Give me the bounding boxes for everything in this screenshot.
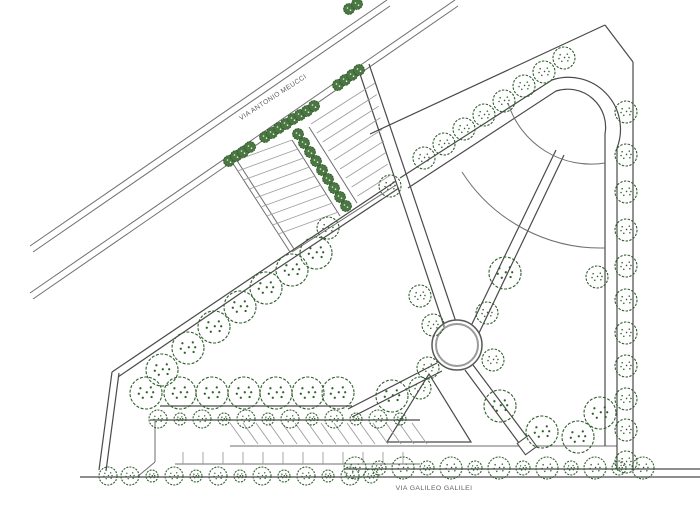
tree-speckle	[216, 478, 217, 479]
tree-speckle	[290, 418, 291, 419]
tree-speckle	[428, 157, 430, 159]
tree-speckle	[433, 324, 435, 326]
tree-speckle	[248, 415, 249, 416]
tree-speckle	[111, 475, 112, 476]
tree-speckle	[380, 465, 381, 466]
tree-speckle	[629, 328, 631, 330]
tree-speckle	[458, 129, 460, 131]
tree-speckle	[285, 477, 286, 478]
tree-speckle	[106, 478, 107, 479]
tree-speckle	[282, 391, 284, 393]
tree-speckle	[296, 273, 298, 275]
tree-symbol	[260, 377, 292, 409]
tree-speckle	[626, 191, 628, 193]
tree-speckle	[615, 468, 616, 469]
tree-speckle	[488, 114, 490, 116]
tree-speckle	[222, 420, 223, 421]
tree-speckle	[310, 420, 311, 421]
tree-speckle	[437, 324, 439, 326]
tree-speckle	[637, 468, 639, 470]
tree-speckle	[178, 420, 179, 421]
tree-symbol	[615, 419, 637, 441]
tree-speckle	[436, 327, 438, 329]
tree-speckle	[621, 469, 622, 470]
tree-speckle	[172, 478, 173, 479]
tree-symbol	[533, 61, 555, 83]
tree-speckle	[542, 430, 544, 432]
tree-speckle	[150, 477, 151, 478]
parking-stall-line	[399, 423, 414, 444]
tree-speckle	[238, 477, 239, 478]
tree-speckle	[415, 292, 417, 294]
tree-speckle	[640, 471, 642, 473]
hedge-dot	[308, 111, 310, 113]
tree-speckle	[550, 463, 552, 465]
tree-speckle	[346, 473, 347, 474]
tree-speckle	[523, 467, 524, 468]
tree-speckle	[264, 472, 265, 473]
tree-speckle	[205, 387, 207, 389]
tree-speckle	[328, 475, 329, 476]
parking-stall-line	[346, 153, 386, 178]
tree-speckle	[423, 291, 425, 293]
tree-speckle	[150, 386, 152, 388]
tree-speckle	[548, 71, 550, 73]
tree-speckle	[266, 420, 267, 421]
tree-speckle	[334, 418, 335, 419]
tree-speckle	[468, 128, 470, 130]
tree-speckle	[368, 473, 369, 474]
tree-speckle	[444, 143, 446, 145]
tree-speckle	[216, 396, 218, 398]
tree-speckle	[417, 299, 419, 301]
tree-speckle	[133, 475, 134, 476]
tree-speckle	[439, 140, 441, 142]
tree-speckle	[184, 352, 186, 354]
tree-speckle	[246, 305, 248, 307]
tree-speckle	[420, 295, 422, 297]
hedge-dot	[353, 75, 355, 77]
tree-speckle	[169, 476, 170, 477]
tree-speckle	[620, 266, 622, 268]
tree-speckle	[325, 476, 326, 477]
tree-speckle	[186, 391, 188, 393]
tree-speckle	[132, 472, 133, 473]
tree-speckle	[197, 419, 198, 420]
tree-speckle	[329, 473, 330, 474]
tree-speckle	[142, 397, 144, 399]
tree-speckle	[276, 391, 278, 393]
tree-speckle	[166, 363, 168, 365]
tree-speckle	[285, 419, 286, 420]
tree-speckle	[419, 154, 421, 156]
tree-symbol	[632, 457, 654, 479]
tree-speckle	[428, 465, 429, 466]
plan-line	[352, 371, 442, 417]
hedge-dot	[287, 124, 289, 126]
tree-speckle	[392, 394, 394, 396]
tree-speckle	[629, 368, 631, 370]
tree-speckle	[507, 103, 509, 105]
tree-speckle	[464, 128, 466, 130]
tree-speckle	[629, 225, 631, 227]
tree-speckle	[293, 418, 294, 419]
tree-speckle	[313, 420, 314, 421]
tree-speckle	[589, 468, 591, 470]
tree-speckle	[600, 411, 602, 413]
hedge-dot	[305, 143, 307, 145]
tree-speckle	[561, 61, 563, 63]
parking-stall-line	[230, 423, 245, 444]
tree-speckle	[268, 393, 270, 395]
tree-speckle	[567, 53, 569, 55]
parking-stall-line	[273, 203, 333, 225]
tree-speckle	[176, 472, 177, 473]
parking-stall-line	[244, 158, 304, 180]
tree-speckle	[168, 368, 170, 370]
tree-speckle	[288, 274, 290, 276]
tree-speckle	[220, 472, 221, 473]
tree-speckle	[431, 370, 433, 372]
tree-speckle	[312, 386, 314, 388]
hedge-dot	[241, 150, 243, 152]
tree-speckle	[204, 415, 205, 416]
hedge-dot	[338, 195, 340, 197]
plan-line	[473, 365, 527, 437]
tree-speckle	[629, 261, 631, 263]
parking-stall-line	[334, 129, 382, 160]
tree-speckle	[128, 478, 129, 479]
tree-speckle	[176, 397, 178, 399]
tree-speckle	[193, 474, 194, 475]
tree-speckle	[384, 396, 386, 398]
tree-speckle	[155, 364, 157, 366]
tree-speckle	[329, 419, 330, 420]
tree-speckle	[380, 421, 381, 422]
tree-speckle	[542, 464, 544, 466]
tree-speckle	[213, 476, 214, 477]
tree-speckle	[196, 475, 197, 476]
tree-speckle	[166, 373, 168, 375]
parking-stall-line	[340, 141, 384, 169]
tree-speckle	[424, 157, 426, 159]
tree-speckle	[623, 465, 625, 467]
tree-speckle	[180, 348, 182, 350]
tree-speckle	[259, 282, 261, 284]
tree-speckle	[221, 475, 222, 476]
tree-speckle	[269, 416, 270, 417]
tree-speckle	[342, 386, 344, 388]
tree-speckle	[524, 85, 526, 87]
tree-speckle	[547, 74, 549, 76]
tree-speckle	[218, 475, 219, 476]
tree-speckle	[328, 227, 330, 229]
parking-stall-line	[243, 423, 258, 444]
tree-speckle	[262, 475, 263, 476]
tree-speckle	[286, 416, 287, 417]
tree-speckle	[401, 420, 402, 421]
hedge-dot	[284, 122, 286, 124]
tree-speckle	[397, 419, 398, 420]
tree-speckle	[445, 468, 447, 470]
plaza-circle	[432, 320, 482, 370]
tree-speckle	[629, 394, 631, 396]
tree-speckle	[629, 268, 631, 270]
tree-speckle	[488, 356, 490, 358]
tree-speckle	[237, 474, 238, 475]
tree-symbol	[198, 311, 230, 343]
tree-speckle	[447, 146, 449, 148]
tree-speckle	[345, 476, 346, 477]
tree-speckle	[559, 54, 561, 56]
tree-speckle	[643, 467, 645, 469]
tree-speckle	[541, 468, 543, 470]
tree-speckle	[569, 469, 570, 470]
tree-speckle	[621, 226, 623, 228]
parking-stall-line	[267, 194, 327, 216]
tree-speckle	[170, 473, 171, 474]
hedge-dot	[263, 135, 265, 137]
tree-speckle	[621, 426, 623, 428]
tree-speckle	[598, 463, 600, 465]
tree-speckle	[204, 393, 206, 395]
plan-line	[112, 276, 254, 372]
tree-speckle	[200, 421, 201, 422]
tree-speckle	[630, 365, 632, 367]
tree-speckle	[198, 475, 199, 476]
hedge-dot	[248, 145, 250, 147]
tree-speckle	[302, 473, 303, 474]
hedge-dot	[298, 113, 300, 115]
tree-speckle	[180, 418, 181, 419]
tree-speckle	[216, 386, 218, 388]
tree-speckle	[521, 89, 523, 91]
tree-speckle	[214, 473, 215, 474]
tree-speckle	[308, 391, 310, 393]
tree-speckle	[429, 469, 430, 470]
tree-speckle	[207, 321, 209, 323]
tree-speckle	[493, 400, 495, 402]
tree-speckle	[616, 465, 617, 466]
tree-speckle	[225, 420, 226, 421]
hedge-dot	[251, 147, 253, 149]
tree-speckle	[312, 418, 313, 419]
hedge-dot	[294, 119, 296, 121]
tree-speckle	[281, 474, 282, 475]
tree-speckle	[626, 265, 628, 267]
tree-speckle	[534, 432, 536, 434]
tree-speckle	[358, 463, 360, 465]
tree-speckle	[414, 296, 416, 298]
tree-speckle	[194, 477, 195, 478]
hedge-dot	[230, 161, 232, 163]
hedge-dot	[332, 186, 334, 188]
tree-speckle	[308, 478, 309, 479]
tree-speckle	[629, 425, 631, 427]
tree-speckle	[629, 114, 631, 116]
tree-symbol	[553, 47, 575, 69]
tree-speckle	[630, 332, 632, 334]
tree-speckle	[477, 469, 478, 470]
tree-speckle	[358, 418, 359, 419]
tree-speckle	[240, 475, 241, 476]
tree-speckle	[567, 60, 569, 62]
tree-speckle	[330, 393, 332, 395]
tree-speckle	[629, 187, 631, 189]
plan-line	[605, 25, 633, 62]
tree-speckle	[194, 346, 196, 348]
tree-speckle	[620, 333, 622, 335]
tree-speckle	[574, 441, 576, 443]
tree-speckle	[432, 367, 434, 369]
tree-symbol	[562, 421, 594, 453]
tree-speckle	[626, 111, 628, 113]
tree-speckle	[496, 471, 498, 473]
tree-speckle	[467, 124, 469, 126]
tree-speckle	[598, 470, 600, 472]
hedge-dot	[326, 177, 328, 179]
tree-speckle	[547, 67, 549, 69]
hedge-dot	[237, 156, 239, 158]
tree-speckle	[473, 469, 474, 470]
tree-speckle	[146, 391, 148, 393]
tree-speckle	[591, 277, 593, 279]
tree-speckle	[593, 407, 595, 409]
tree-speckle	[544, 471, 546, 473]
tree-speckle	[388, 400, 390, 402]
tree-speckle	[606, 411, 608, 413]
tree-speckle	[103, 476, 104, 477]
tree-speckle	[420, 387, 422, 389]
tree-speckle	[525, 467, 526, 468]
tree-speckle	[599, 467, 601, 469]
tree-speckle	[330, 475, 331, 476]
tree-speckle	[244, 391, 246, 393]
tree-symbol	[322, 377, 354, 409]
tree-speckle	[312, 396, 314, 398]
tree-speckle	[244, 310, 246, 312]
tree-speckle	[492, 406, 494, 408]
plan-path	[462, 172, 605, 248]
tree-speckle	[241, 473, 242, 474]
tree-symbol	[513, 75, 535, 97]
tree-speckle	[377, 469, 378, 470]
plan-line	[118, 282, 257, 377]
tree-speckle	[626, 398, 628, 400]
parking-stall-line	[347, 423, 362, 444]
tree-speckle	[620, 155, 622, 157]
tree-speckle	[316, 251, 318, 253]
tree-speckle	[630, 265, 632, 267]
tree-speckle	[499, 467, 501, 469]
tree-speckle	[352, 478, 353, 479]
tree-speckle	[630, 461, 632, 463]
tree-speckle	[378, 418, 379, 419]
tree-speckle	[539, 68, 541, 70]
tree-speckle	[502, 470, 504, 472]
tree-speckle	[138, 393, 140, 395]
tree-speckle	[149, 474, 150, 475]
tree-speckle	[270, 281, 272, 283]
tree-speckle	[538, 436, 540, 438]
tree-speckle	[358, 470, 360, 472]
hedge-dot	[315, 106, 317, 108]
tree-speckle	[476, 465, 477, 466]
tree-speckle	[372, 473, 373, 474]
tree-symbol	[228, 377, 260, 409]
tree-speckle	[184, 386, 186, 388]
tree-speckle	[153, 419, 154, 420]
tree-speckle	[309, 475, 310, 476]
tree-speckle	[509, 276, 511, 278]
hedge-dot	[277, 126, 279, 128]
tree-speckle	[620, 112, 622, 114]
tree-speckle	[396, 399, 398, 401]
tree-speckle	[309, 419, 310, 420]
tree-speckle	[258, 288, 260, 290]
tree-speckle	[504, 100, 506, 102]
tree-speckle	[387, 189, 389, 191]
tree-speckle	[355, 467, 357, 469]
hedge-dot	[280, 128, 282, 130]
tree-speckle	[487, 117, 489, 119]
tree-speckle	[417, 391, 419, 393]
tree-speckle	[535, 426, 537, 428]
parking-stall-line	[328, 118, 380, 151]
hedge-dot	[244, 152, 246, 154]
tree-speckle	[499, 97, 501, 99]
tree-speckle	[350, 464, 352, 466]
tree-speckle	[571, 467, 572, 468]
tree-speckle	[546, 435, 548, 437]
tree-speckle	[596, 417, 598, 419]
tree-speckle	[427, 160, 429, 162]
tree-speckle	[270, 291, 272, 293]
tree-speckle	[353, 419, 354, 420]
tree-speckle	[446, 464, 448, 466]
tree-speckle	[400, 418, 401, 419]
tree-speckle	[322, 251, 324, 253]
hedge-dot	[312, 104, 314, 106]
tree-speckle	[441, 147, 443, 149]
tree-speckle	[501, 104, 503, 106]
tree-symbol	[615, 181, 637, 203]
tree-speckle	[350, 475, 351, 476]
hedge-dot	[343, 78, 345, 80]
parking-stall-line	[295, 423, 310, 444]
hedge-dot	[266, 137, 268, 139]
tree-speckle	[621, 362, 623, 364]
tree-speckle	[629, 295, 631, 297]
tree-speckle	[503, 467, 505, 469]
tree-speckle	[493, 359, 495, 361]
tree-speckle	[509, 266, 511, 268]
tree-speckle	[177, 419, 178, 420]
tree-speckle	[380, 415, 381, 416]
tree-speckle	[393, 181, 395, 183]
tree-speckle	[604, 406, 606, 408]
tree-speckle	[571, 431, 573, 433]
parking-stall-line	[317, 95, 377, 133]
tree-speckle	[337, 418, 338, 419]
hedge-dot	[360, 70, 362, 72]
plan-line	[348, 363, 437, 409]
tree-speckle	[359, 467, 361, 469]
tree-speckle	[336, 415, 337, 416]
tree-speckle	[427, 325, 429, 327]
tree-speckle	[292, 421, 293, 422]
tree-speckle	[269, 387, 271, 389]
